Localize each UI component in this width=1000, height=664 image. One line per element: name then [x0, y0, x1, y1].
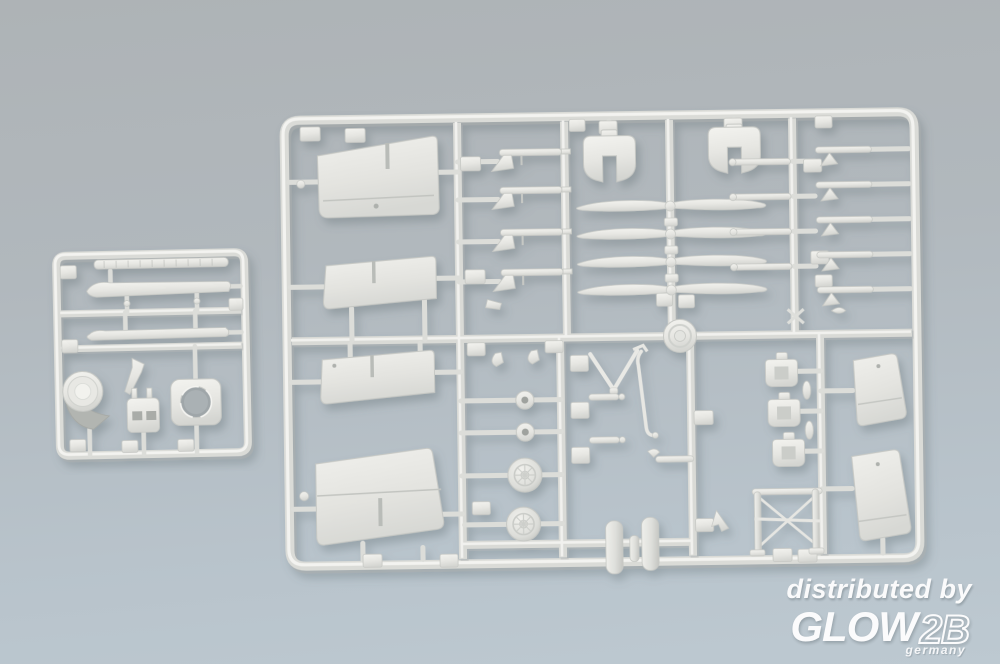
- wheel-hub-part: [516, 391, 535, 441]
- heart-fairing-part: [583, 130, 636, 183]
- sprues-illustration: [0, 0, 1000, 664]
- pilot-seat-part: [127, 388, 160, 433]
- small-hook-parts: [492, 350, 539, 367]
- float-ski-part: [87, 327, 229, 340]
- watermark: distributed by GLOW 2B germany: [786, 576, 972, 656]
- engine-cowling-drum-part: [62, 371, 109, 430]
- stabilizer-half-part: [852, 450, 911, 541]
- small-bracket-parts: [729, 146, 874, 324]
- machine-gun-part: [483, 148, 572, 309]
- stabilizer-half-part: [853, 354, 906, 426]
- main-wheel-part: [506, 458, 543, 541]
- product-photo: distributed by GLOW 2B germany: [0, 0, 1000, 664]
- watermark-country: germany: [786, 644, 972, 656]
- watermark-brand-text: GLOW: [790, 603, 921, 650]
- float-ski-part: [86, 280, 230, 308]
- watermark-distributed-by: distributed by: [786, 576, 972, 603]
- wing-half-part: [323, 256, 437, 309]
- large-sprue: [283, 110, 922, 578]
- heart-fairing-part: [708, 124, 761, 174]
- cabane-strut-part: [749, 488, 824, 556]
- long-strut-part: [633, 345, 658, 438]
- wing-half-part: [320, 350, 435, 404]
- v-strut-part: [590, 351, 638, 395]
- cowl-ring-part: [171, 379, 222, 426]
- rosette-boss-part: [663, 319, 696, 352]
- wing-half-part: [296, 136, 439, 218]
- small-sprue: [55, 251, 250, 459]
- wing-half-part: [299, 448, 444, 545]
